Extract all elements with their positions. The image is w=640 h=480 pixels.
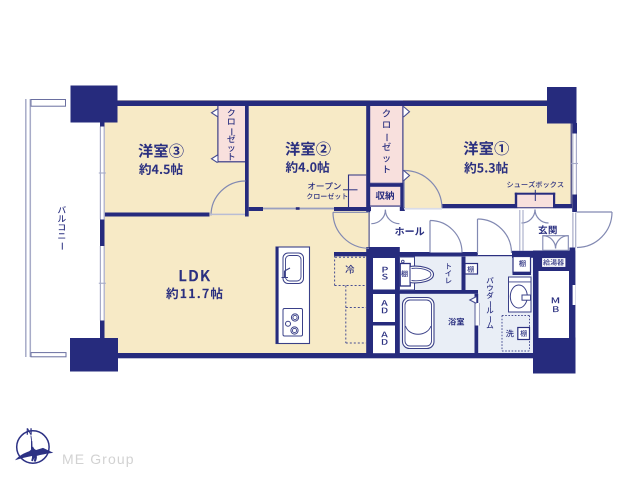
svg-text:ME Group: ME Group bbox=[62, 451, 135, 467]
